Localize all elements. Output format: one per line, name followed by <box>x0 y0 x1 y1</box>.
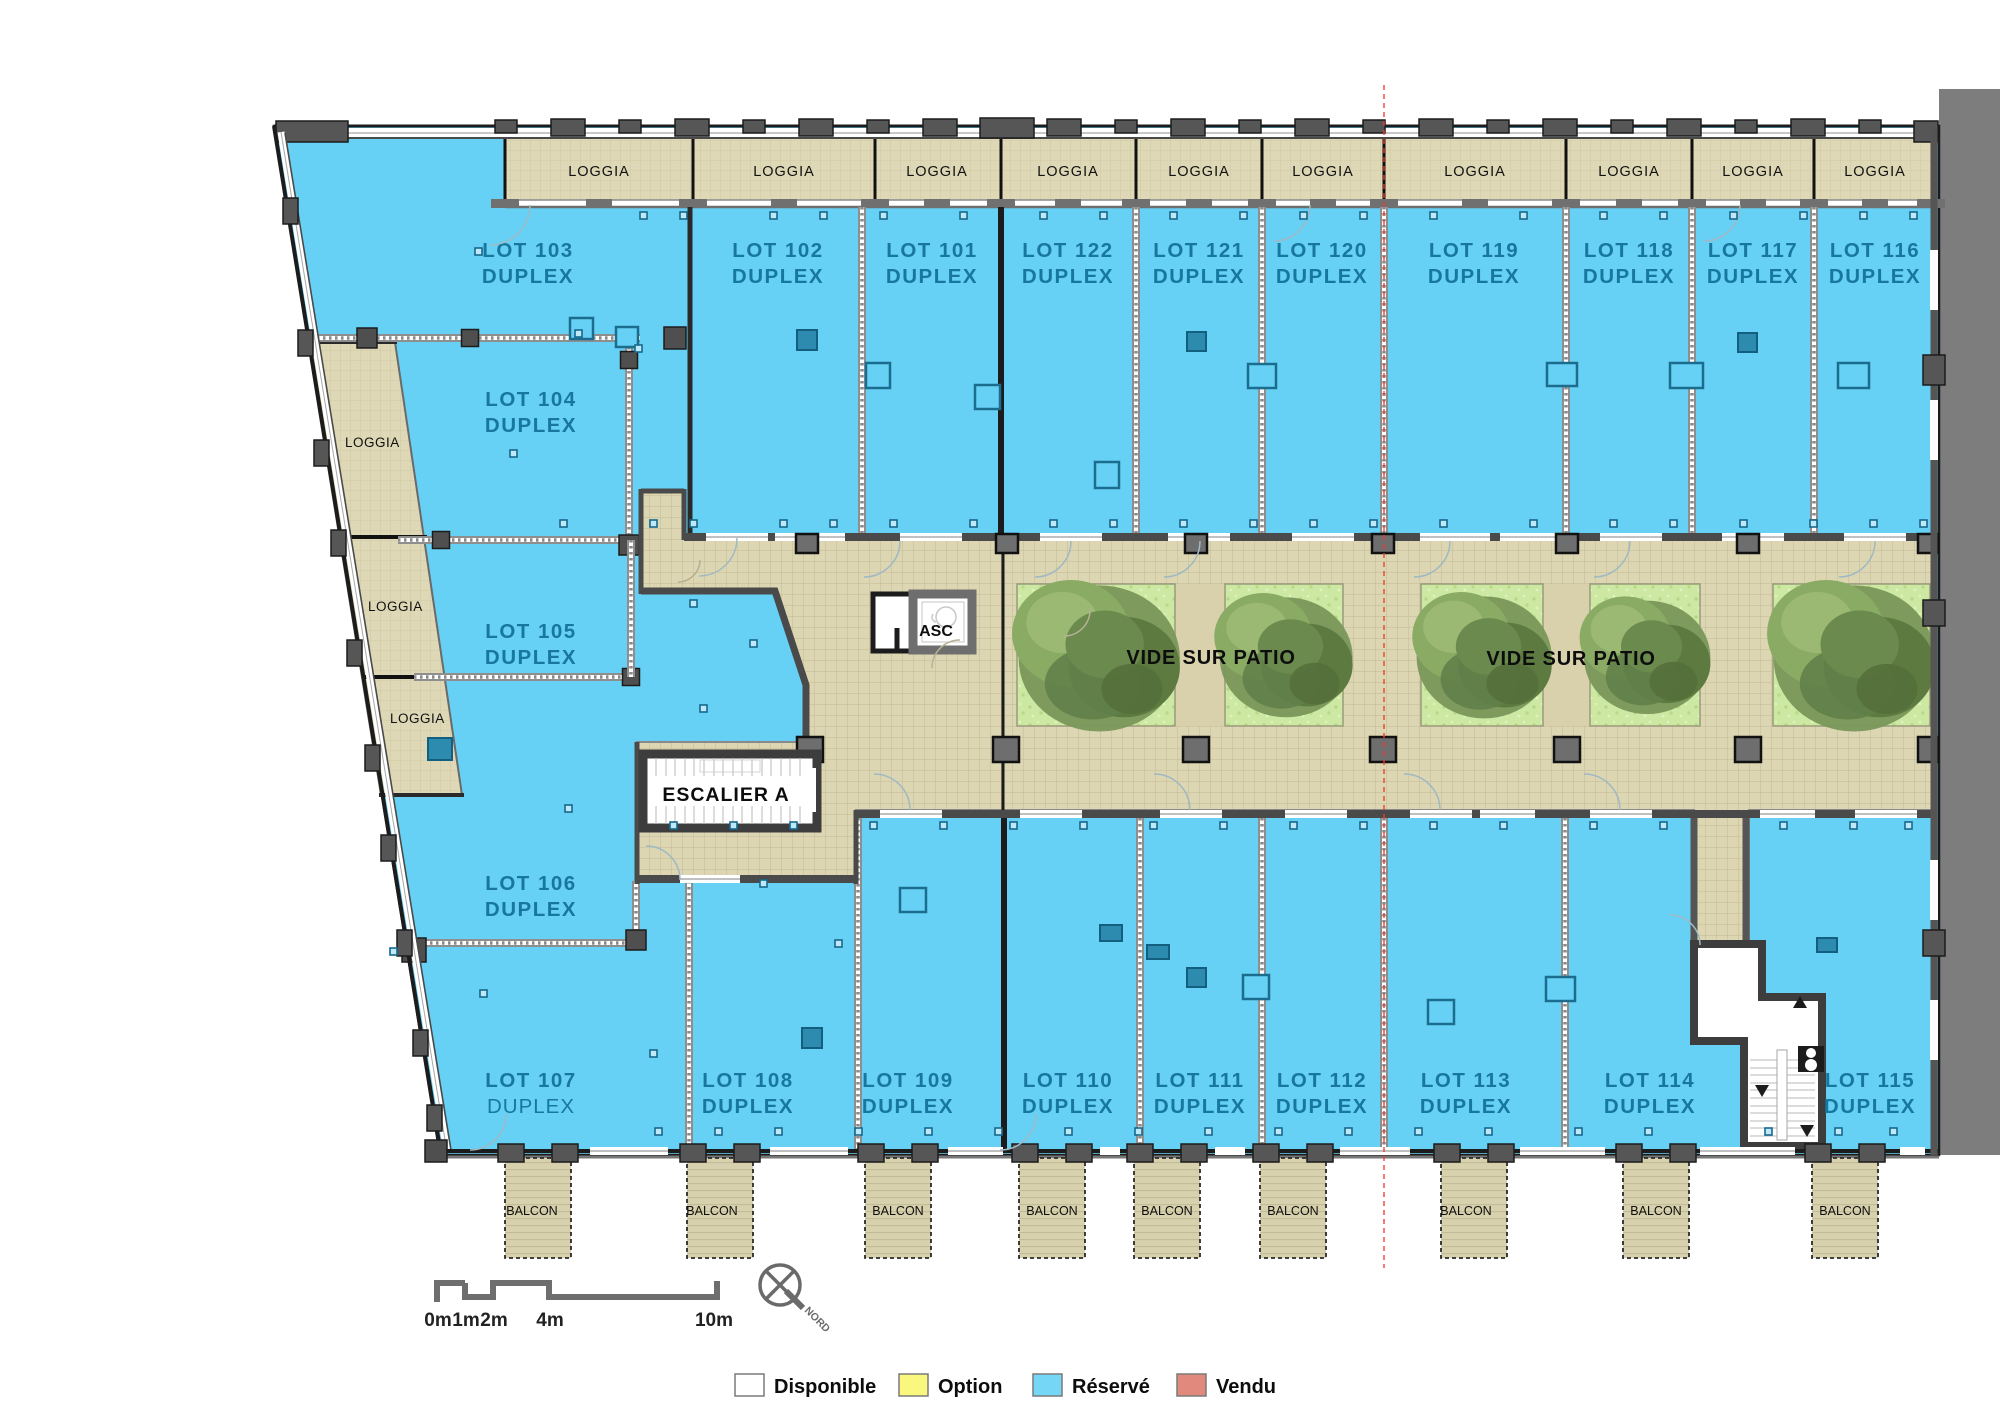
svg-text:LOGGIA: LOGGIA <box>1444 164 1506 180</box>
svg-text:BALCON: BALCON <box>1026 1204 1077 1218</box>
svg-text:LOGGIA: LOGGIA <box>906 164 968 180</box>
svg-text:LOGGIA: LOGGIA <box>1598 164 1660 180</box>
svg-text:LOGGIA: LOGGIA <box>1037 164 1099 180</box>
svg-text:DUPLEX: DUPLEX <box>1276 1095 1368 1118</box>
svg-text:DUPLEX: DUPLEX <box>1420 1095 1512 1118</box>
svg-text:LOT 107: LOT 107 <box>485 1069 576 1092</box>
svg-text:LOT 114: LOT 114 <box>1605 1069 1695 1092</box>
svg-text:LOGGIA: LOGGIA <box>1168 164 1230 180</box>
svg-text:LOT 109: LOT 109 <box>862 1069 953 1092</box>
svg-text:LOGGIA: LOGGIA <box>753 164 815 180</box>
svg-text:2m: 2m <box>480 1310 507 1331</box>
svg-text:1m: 1m <box>452 1310 479 1331</box>
svg-text:DUPLEX: DUPLEX <box>1583 265 1675 288</box>
svg-text:VIDE SUR PATIO: VIDE SUR PATIO <box>1126 647 1295 669</box>
svg-text:LOT 119: LOT 119 <box>1429 239 1519 262</box>
svg-text:DUPLEX: DUPLEX <box>1428 265 1520 288</box>
svg-text:0m: 0m <box>424 1310 451 1331</box>
svg-text:DUPLEX: DUPLEX <box>485 414 577 437</box>
svg-text:LOT 103: LOT 103 <box>482 239 573 262</box>
svg-text:BALCON: BALCON <box>506 1204 557 1218</box>
svg-text:LOT 113: LOT 113 <box>1421 1069 1511 1092</box>
svg-text:LOT 104: LOT 104 <box>485 388 576 411</box>
svg-text:LOT 116: LOT 116 <box>1830 239 1920 262</box>
svg-text:DUPLEX: DUPLEX <box>1276 265 1368 288</box>
svg-text:DUPLEX: DUPLEX <box>485 898 577 921</box>
svg-text:LOT 110: LOT 110 <box>1023 1069 1113 1092</box>
svg-text:BALCON: BALCON <box>686 1204 737 1218</box>
svg-text:LOT 117: LOT 117 <box>1708 239 1798 262</box>
svg-text:LOT 118: LOT 118 <box>1584 239 1674 262</box>
svg-text:Vendu: Vendu <box>1216 1376 1276 1398</box>
svg-text:ASC: ASC <box>919 623 953 640</box>
svg-text:Disponible: Disponible <box>774 1376 876 1398</box>
svg-text:Option: Option <box>938 1376 1002 1398</box>
svg-text:DUPLEX: DUPLEX <box>1829 265 1921 288</box>
svg-text:LOGGIA: LOGGIA <box>1844 164 1906 180</box>
svg-text:LOT 121: LOT 121 <box>1153 239 1244 262</box>
svg-text:DUPLEX: DUPLEX <box>1153 265 1245 288</box>
svg-text:DUPLEX: DUPLEX <box>1022 265 1114 288</box>
svg-text:LOT 106: LOT 106 <box>485 872 576 895</box>
svg-text:BALCON: BALCON <box>1819 1204 1870 1218</box>
svg-text:BALCON: BALCON <box>872 1204 923 1218</box>
svg-text:DUPLEX: DUPLEX <box>1604 1095 1696 1118</box>
svg-text:LOT 120: LOT 120 <box>1276 239 1367 262</box>
svg-text:VIDE SUR PATIO: VIDE SUR PATIO <box>1486 648 1655 670</box>
svg-text:BALCON: BALCON <box>1141 1204 1192 1218</box>
svg-text:Réservé: Réservé <box>1072 1376 1150 1398</box>
svg-text:LOT 112: LOT 112 <box>1277 1069 1367 1092</box>
svg-text:LOT 102: LOT 102 <box>732 239 823 262</box>
svg-text:LOT 111: LOT 111 <box>1155 1069 1244 1092</box>
svg-text:DUPLEX: DUPLEX <box>886 265 978 288</box>
svg-text:10m: 10m <box>695 1310 733 1331</box>
svg-text:BALCON: BALCON <box>1267 1204 1318 1218</box>
svg-text:LOT 108: LOT 108 <box>702 1069 793 1092</box>
svg-text:DUPLEX: DUPLEX <box>487 1095 575 1118</box>
svg-text:LOGGIA: LOGGIA <box>345 435 400 450</box>
svg-text:LOT 101: LOT 101 <box>886 239 977 262</box>
svg-text:LOGGIA: LOGGIA <box>1722 164 1784 180</box>
svg-text:DUPLEX: DUPLEX <box>1154 1095 1246 1118</box>
svg-text:BALCON: BALCON <box>1440 1204 1491 1218</box>
svg-text:DUPLEX: DUPLEX <box>482 265 574 288</box>
svg-text:DUPLEX: DUPLEX <box>862 1095 954 1118</box>
svg-text:DUPLEX: DUPLEX <box>1707 265 1799 288</box>
svg-text:DUPLEX: DUPLEX <box>732 265 824 288</box>
svg-text:LOGGIA: LOGGIA <box>568 164 630 180</box>
svg-text:DUPLEX: DUPLEX <box>1824 1095 1916 1118</box>
svg-text:ESCALIER A: ESCALIER A <box>662 784 789 806</box>
svg-text:DUPLEX: DUPLEX <box>485 646 577 669</box>
svg-text:LOGGIA: LOGGIA <box>1292 164 1354 180</box>
svg-text:BALCON: BALCON <box>1630 1204 1681 1218</box>
svg-text:4m: 4m <box>536 1310 563 1331</box>
svg-text:LOGGIA: LOGGIA <box>368 599 423 614</box>
svg-text:LOGGIA: LOGGIA <box>390 711 445 726</box>
svg-text:DUPLEX: DUPLEX <box>702 1095 794 1118</box>
svg-text:LOT 105: LOT 105 <box>485 620 576 643</box>
svg-text:LOT 122: LOT 122 <box>1022 239 1113 262</box>
svg-text:LOT 115: LOT 115 <box>1825 1069 1915 1092</box>
